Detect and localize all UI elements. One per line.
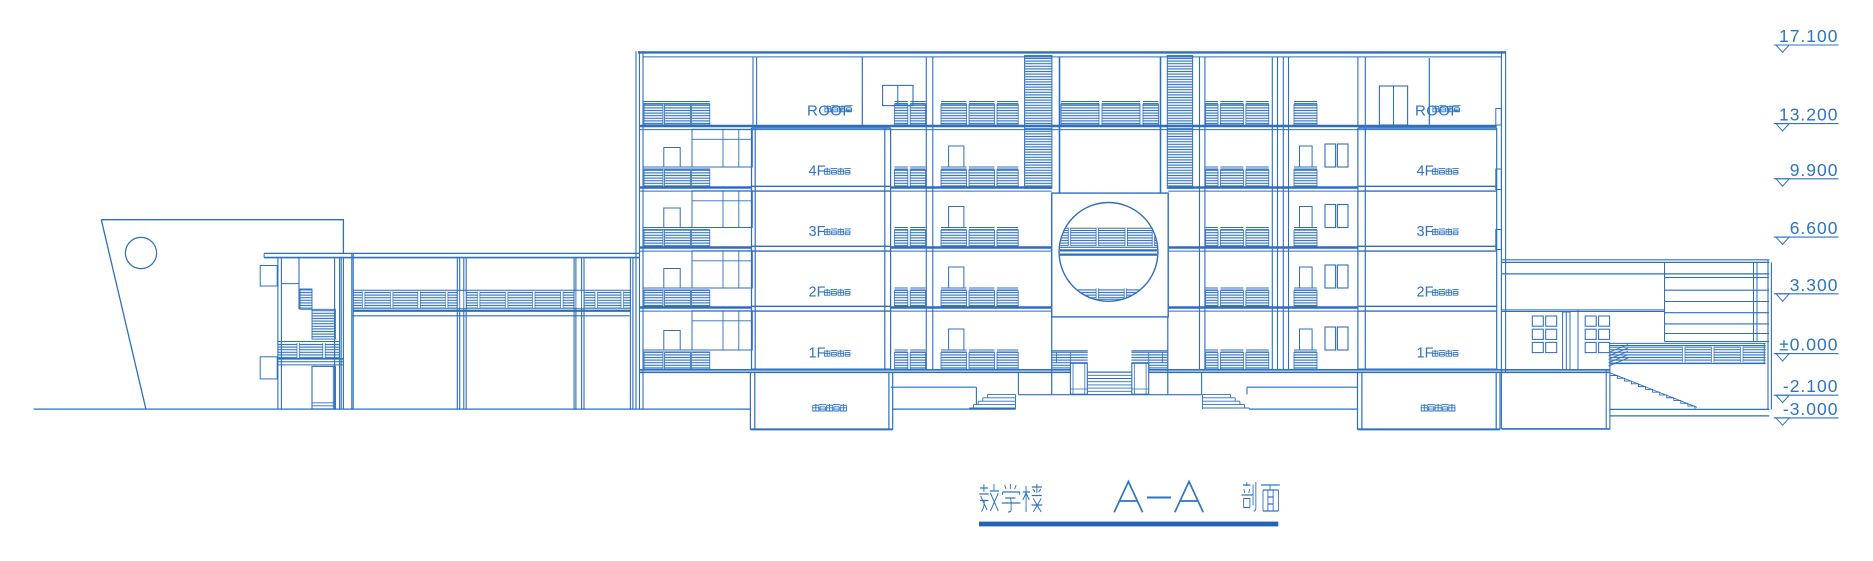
svg-text:3.300: 3.300 xyxy=(1790,275,1839,295)
svg-text:-3.000: -3.000 xyxy=(1783,399,1839,419)
svg-text:6.600: 6.600 xyxy=(1790,218,1839,238)
svg-text:4F: 4F xyxy=(1417,164,1434,180)
svg-text:17.100: 17.100 xyxy=(1779,26,1839,46)
svg-text:13.200: 13.200 xyxy=(1779,105,1839,125)
svg-text:4F: 4F xyxy=(809,164,826,180)
svg-text:9.900: 9.900 xyxy=(1790,160,1839,180)
svg-text:-2.100: -2.100 xyxy=(1783,376,1839,396)
svg-text:±0.000: ±0.000 xyxy=(1779,335,1838,355)
svg-text:3F: 3F xyxy=(1417,224,1434,240)
svg-text:1F: 1F xyxy=(809,346,826,362)
svg-text:2F: 2F xyxy=(1417,285,1434,301)
svg-text:3F: 3F xyxy=(809,224,826,240)
svg-text:2F: 2F xyxy=(809,285,826,301)
svg-text:1F: 1F xyxy=(1417,346,1434,362)
